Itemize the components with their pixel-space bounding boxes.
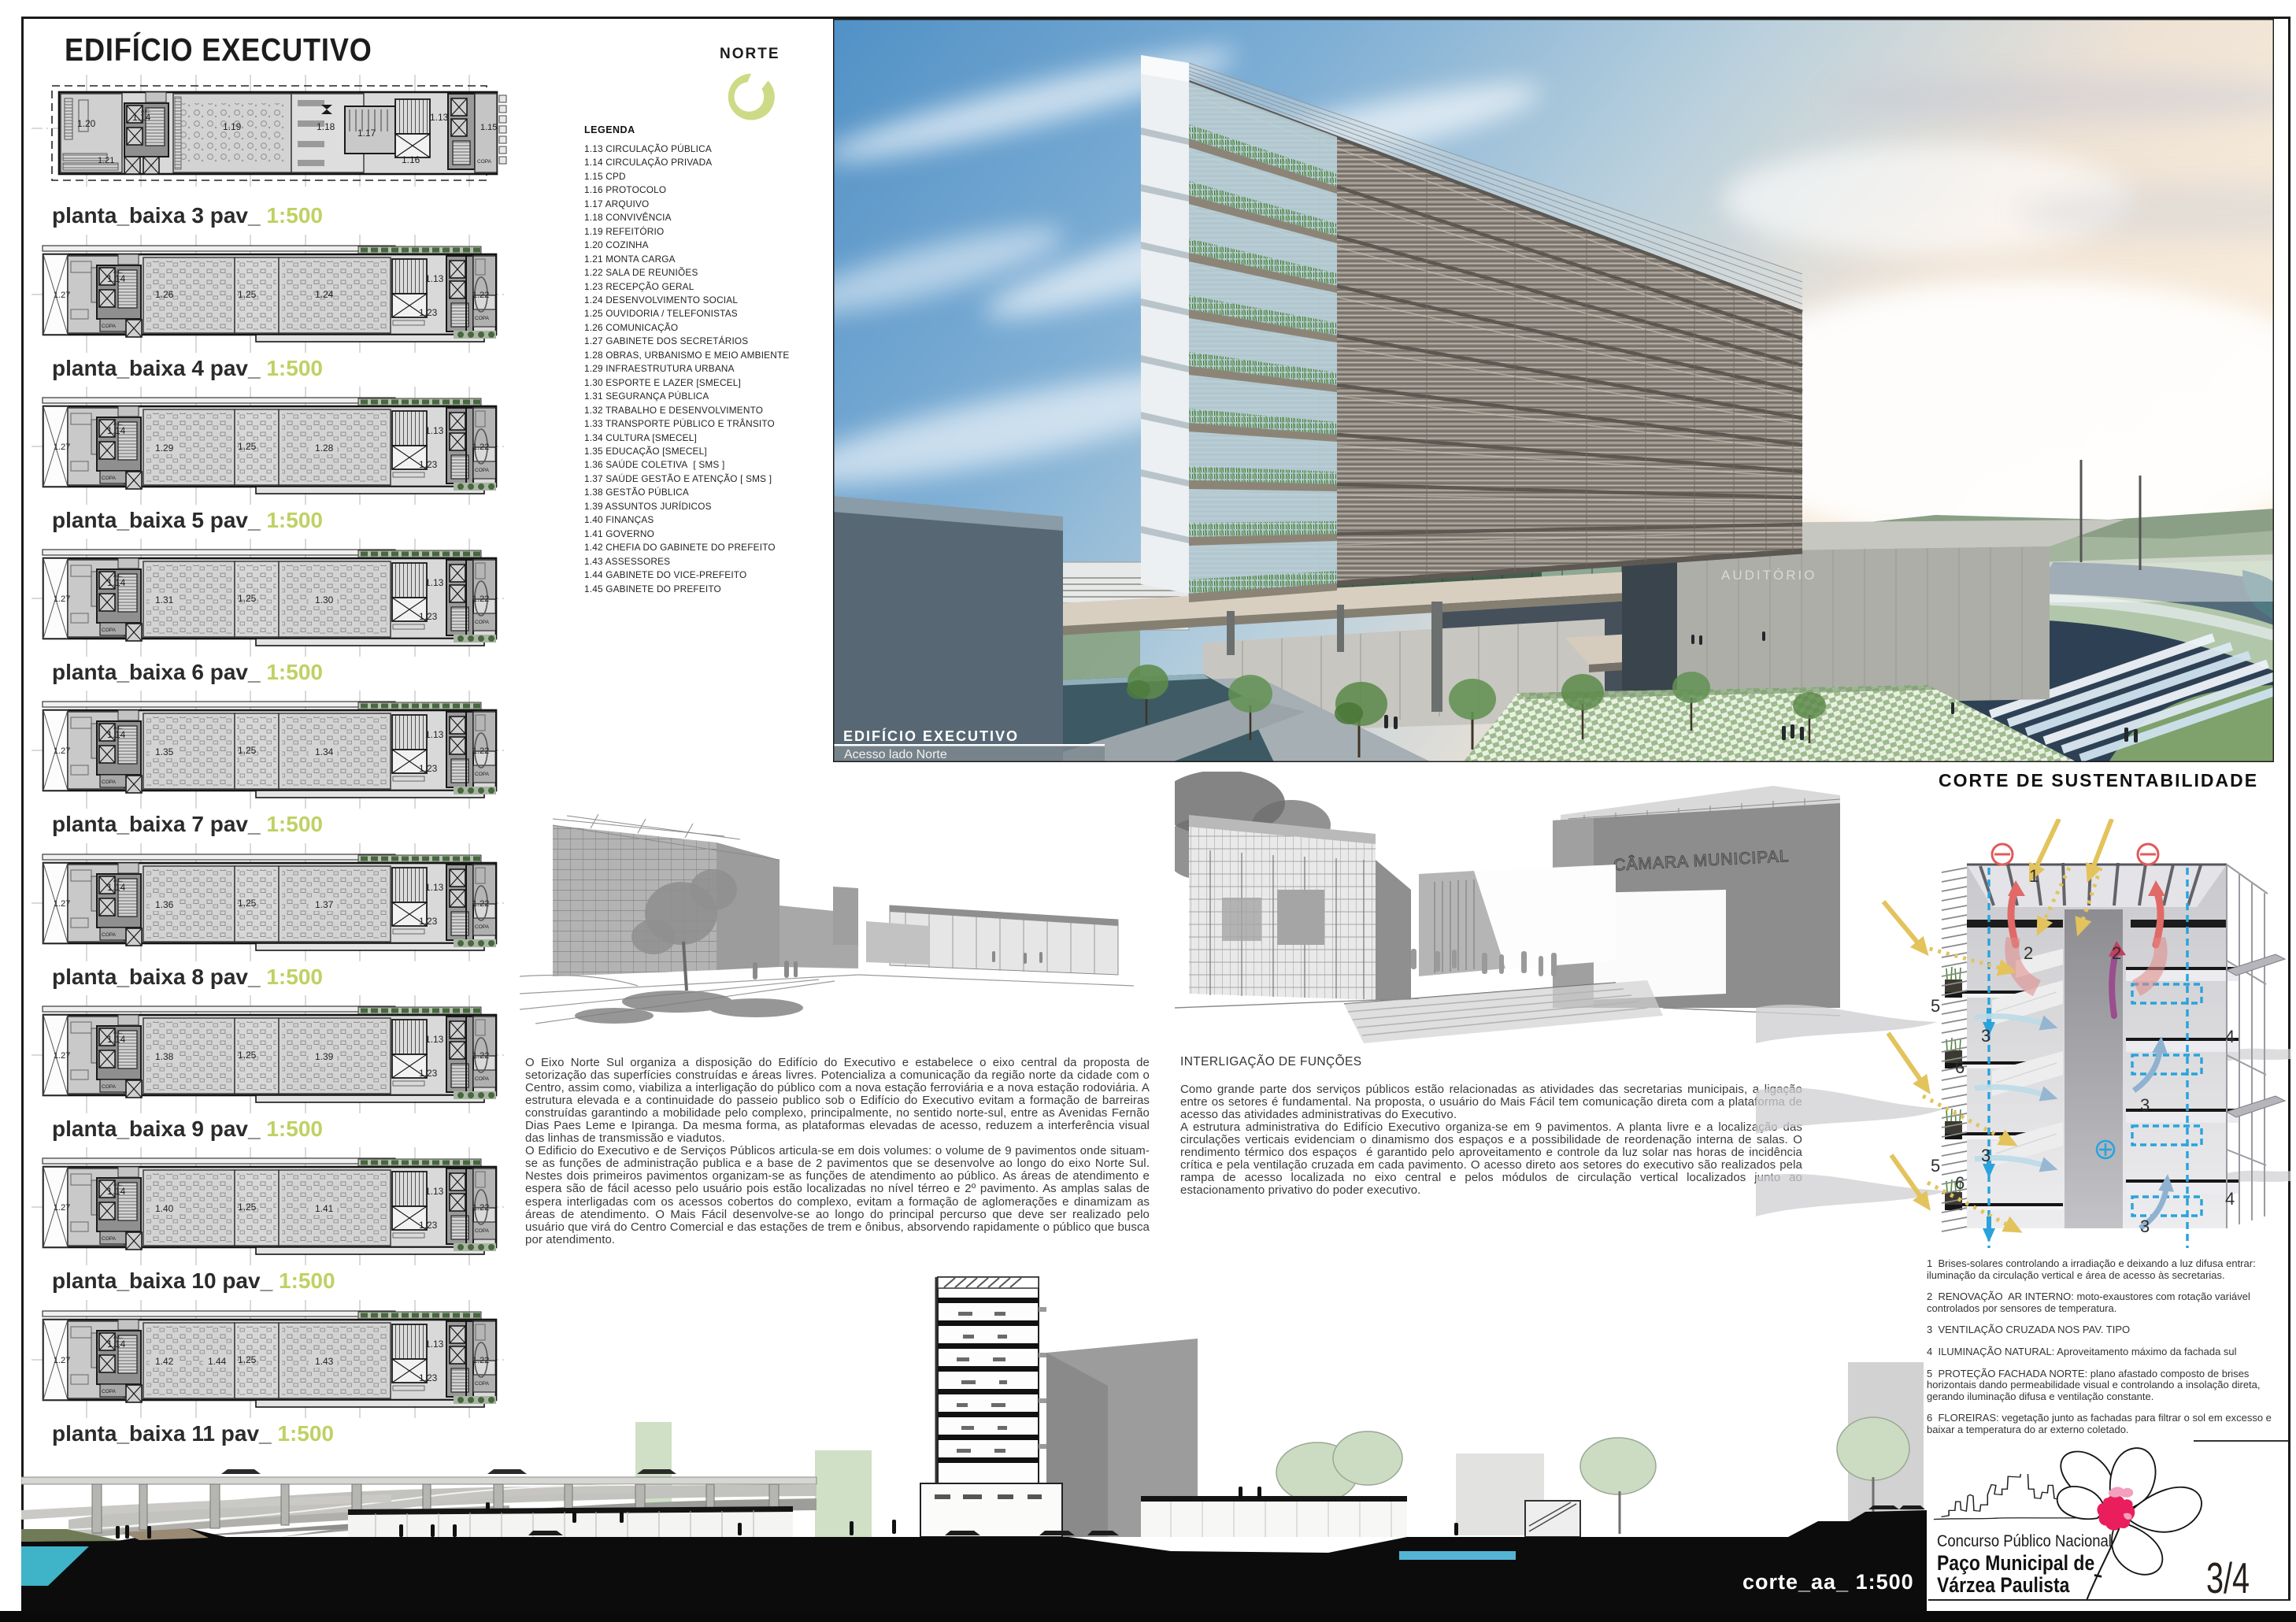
svg-text:Acesso lado Norte: Acesso lado Norte — [844, 748, 947, 761]
svg-text:2: 2 — [2112, 943, 2121, 963]
svg-text:2: 2 — [2024, 943, 2033, 963]
svg-text:4: 4 — [2225, 1189, 2235, 1209]
svg-text:1.39: 1.39 — [315, 1051, 334, 1062]
svg-text:3: 3 — [1981, 1146, 1990, 1165]
svg-text:5: 5 — [1931, 996, 1940, 1016]
svg-text:1.38: 1.38 — [155, 1051, 174, 1062]
svg-text:EDIFÍCIO EXECUTIVO: EDIFÍCIO EXECUTIVO — [843, 728, 1019, 744]
svg-text:1.40: 1.40 — [155, 1203, 174, 1214]
svg-text:1.36: 1.36 — [155, 899, 174, 910]
svg-text:1.37: 1.37 — [315, 899, 334, 910]
svg-text:3: 3 — [1981, 1026, 1990, 1046]
svg-text:1.28: 1.28 — [315, 443, 334, 454]
svg-text:1.31: 1.31 — [155, 594, 174, 605]
svg-text:AUDITÓRIO: AUDITÓRIO — [1721, 568, 1816, 583]
svg-text:5: 5 — [1931, 1156, 1940, 1176]
svg-text:3: 3 — [2140, 1216, 2150, 1236]
svg-text:corte_aa_ 1:500: corte_aa_ 1:500 — [1742, 1570, 1914, 1594]
svg-text:1.34: 1.34 — [315, 746, 334, 757]
svg-text:6: 6 — [1955, 1057, 1965, 1077]
svg-text:6: 6 — [1955, 1173, 1965, 1193]
svg-text:4: 4 — [2225, 1027, 2235, 1046]
svg-text:1.29: 1.29 — [155, 443, 174, 454]
svg-text:1: 1 — [2029, 866, 2039, 886]
svg-text:3: 3 — [2140, 1095, 2150, 1115]
svg-text:1.35: 1.35 — [155, 746, 174, 757]
svg-text:1.41: 1.41 — [315, 1203, 334, 1214]
svg-text:1.30: 1.30 — [315, 594, 334, 605]
